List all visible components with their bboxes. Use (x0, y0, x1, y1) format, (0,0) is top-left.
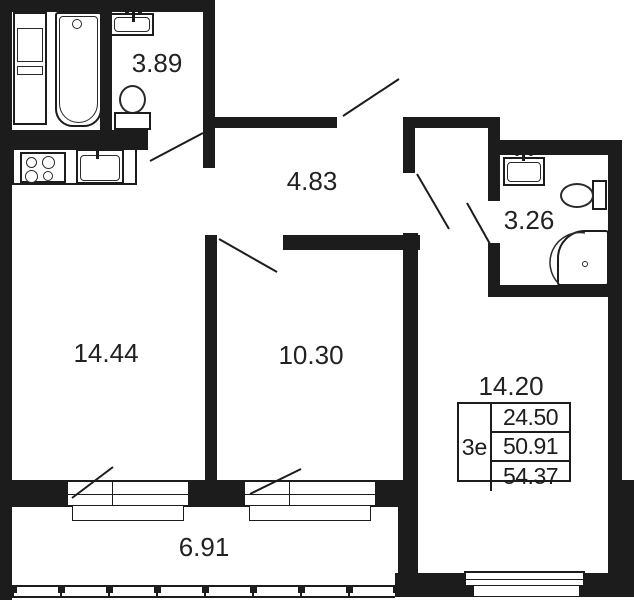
bathroom-right-door-swing (467, 203, 490, 244)
faucet-icon (529, 152, 533, 156)
window-frame-line (112, 482, 113, 505)
kitchen-balcony-door-window (66, 480, 190, 507)
shower-drain (582, 261, 588, 267)
apartment-type-cell: 3е (459, 404, 492, 491)
faucet-icon (522, 151, 525, 161)
faucet-icon (138, 11, 142, 15)
room-area-label-hallway: 4.83 (287, 168, 338, 194)
living-room-door-swing (417, 174, 449, 229)
faucet-icon (96, 145, 99, 159)
living-room-bay-window-outer (473, 585, 580, 597)
wall (0, 130, 148, 150)
window-frame-line (289, 482, 290, 505)
window-frame-line (68, 494, 188, 495)
window-frame-line (245, 494, 375, 495)
burner-icon (43, 171, 53, 181)
balcony-glazing (12, 585, 395, 598)
living-area-value: 24.50 (492, 404, 569, 433)
room-area-label-kitchen: 14.44 (73, 340, 138, 366)
faucet-icon (125, 11, 129, 15)
room-area-label-balcony: 6.91 (179, 534, 230, 560)
apartment-info-table: 3е 24.50 50.91 54.37 (457, 402, 571, 482)
burner-icon (25, 170, 38, 183)
wall (608, 140, 622, 480)
bedroom-balcony-door-window (243, 480, 377, 507)
entrance-door-swing (343, 79, 399, 116)
faucet-icon (132, 10, 135, 22)
shower-tray (557, 230, 609, 286)
wall (488, 285, 620, 297)
toilet2-bowl (560, 183, 594, 208)
wall (205, 235, 217, 480)
faucet-icon (88, 144, 92, 148)
window-frame-line (466, 579, 583, 580)
room-area-label-bathroom-right: 3.26 (504, 207, 555, 233)
kitchen-sink-basin (80, 155, 120, 181)
wall (403, 233, 418, 480)
burner-icon (42, 156, 55, 169)
toilet-tank (114, 112, 151, 130)
wall (0, 0, 215, 12)
wall (403, 117, 415, 173)
room-area-label-bedroom: 10.30 (278, 342, 343, 368)
wall (403, 117, 500, 128)
bathtub-inner (59, 16, 98, 123)
bathroom-top-door-swing (150, 133, 203, 161)
wall (488, 117, 500, 201)
room-area-label-living-room: 14.20 (478, 373, 543, 399)
room-area-label-bathroom-top: 3.89 (132, 50, 183, 76)
bathroom2-sink-basin (507, 162, 541, 182)
washing-machine-drum (17, 28, 43, 62)
cabinet-shelf (17, 66, 43, 75)
window-sill (249, 505, 371, 521)
bedroom-door-swing (219, 239, 277, 272)
toilet-bowl (119, 85, 146, 114)
wall (203, 12, 215, 168)
window-sill (72, 505, 184, 521)
floor-plan: 3.89 4.83 3.26 14.44 10.30 14.20 6.91 3е… (0, 0, 634, 600)
toilet2-tank (592, 180, 607, 210)
wall (0, 0, 12, 600)
wall (203, 117, 337, 128)
total-area-value: 54.37 (492, 462, 569, 491)
bathtub-drain (72, 19, 82, 29)
wall (608, 480, 634, 575)
area-value: 50.91 (492, 433, 569, 462)
faucet-icon (515, 152, 519, 156)
faucet-icon (104, 144, 108, 148)
apartment-areas: 24.50 50.91 54.37 (492, 404, 569, 491)
wall (283, 235, 420, 250)
stove (20, 152, 66, 183)
burner-icon (26, 157, 37, 168)
wall (490, 140, 620, 155)
